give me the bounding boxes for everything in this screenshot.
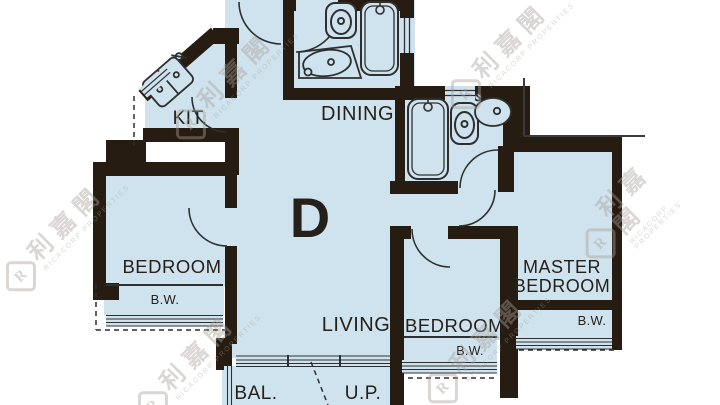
floor-plan: KIT. DINING D BEDROOM B.W. LIVING BEDROO…	[0, 0, 720, 405]
wall	[143, 128, 239, 142]
label-utility-platform: U.P.	[340, 383, 386, 405]
ricacorp-logo-icon: R	[138, 391, 168, 405]
area-main-corridor-dining-living	[225, 0, 415, 358]
wall	[93, 283, 119, 300]
unit-letter: D	[285, 185, 335, 250]
label-dining: DINING	[310, 103, 405, 126]
wall	[498, 146, 514, 192]
wall	[500, 226, 518, 398]
label-living: LIVING	[318, 314, 394, 337]
label-master-line2: BEDROOM	[514, 276, 611, 296]
wall	[225, 288, 237, 344]
label-balcony: BAL.	[230, 383, 282, 405]
wall	[390, 181, 458, 194]
boundary-line	[524, 78, 645, 136]
label-bedroom-mid: BEDROOM	[405, 315, 500, 337]
watermark-cjk: 利嘉閣	[469, 0, 554, 84]
ricacorp-logo-icon: R	[428, 373, 458, 403]
label-master-line1: MASTER	[523, 257, 601, 277]
area-bathroom-2	[400, 88, 508, 183]
wall	[93, 162, 106, 300]
ricacorp-logo-icon: R	[6, 261, 36, 291]
watermark-en: RICACORP PROPERTIES	[629, 175, 705, 251]
wall	[93, 162, 237, 176]
wall	[503, 136, 618, 152]
wall	[283, 0, 294, 100]
wall	[513, 300, 613, 310]
label-master-bedroom: MASTER BEDROOM	[508, 258, 616, 296]
wall	[395, 86, 405, 186]
label-kitchen: KIT.	[160, 108, 220, 130]
wall	[216, 338, 232, 370]
label-bw-left: B.W.	[135, 292, 195, 307]
label-bw-mid: B.W.	[448, 344, 492, 358]
watermark-en: RICACORP PROPERTIES	[488, 2, 576, 90]
wall	[400, 86, 445, 100]
wall	[225, 162, 237, 208]
label-bedroom-left: BEDROOM	[112, 256, 232, 278]
wall	[400, 0, 414, 18]
label-bw-master: B.W.	[570, 313, 614, 328]
wall	[225, 30, 237, 98]
wall	[448, 226, 512, 239]
